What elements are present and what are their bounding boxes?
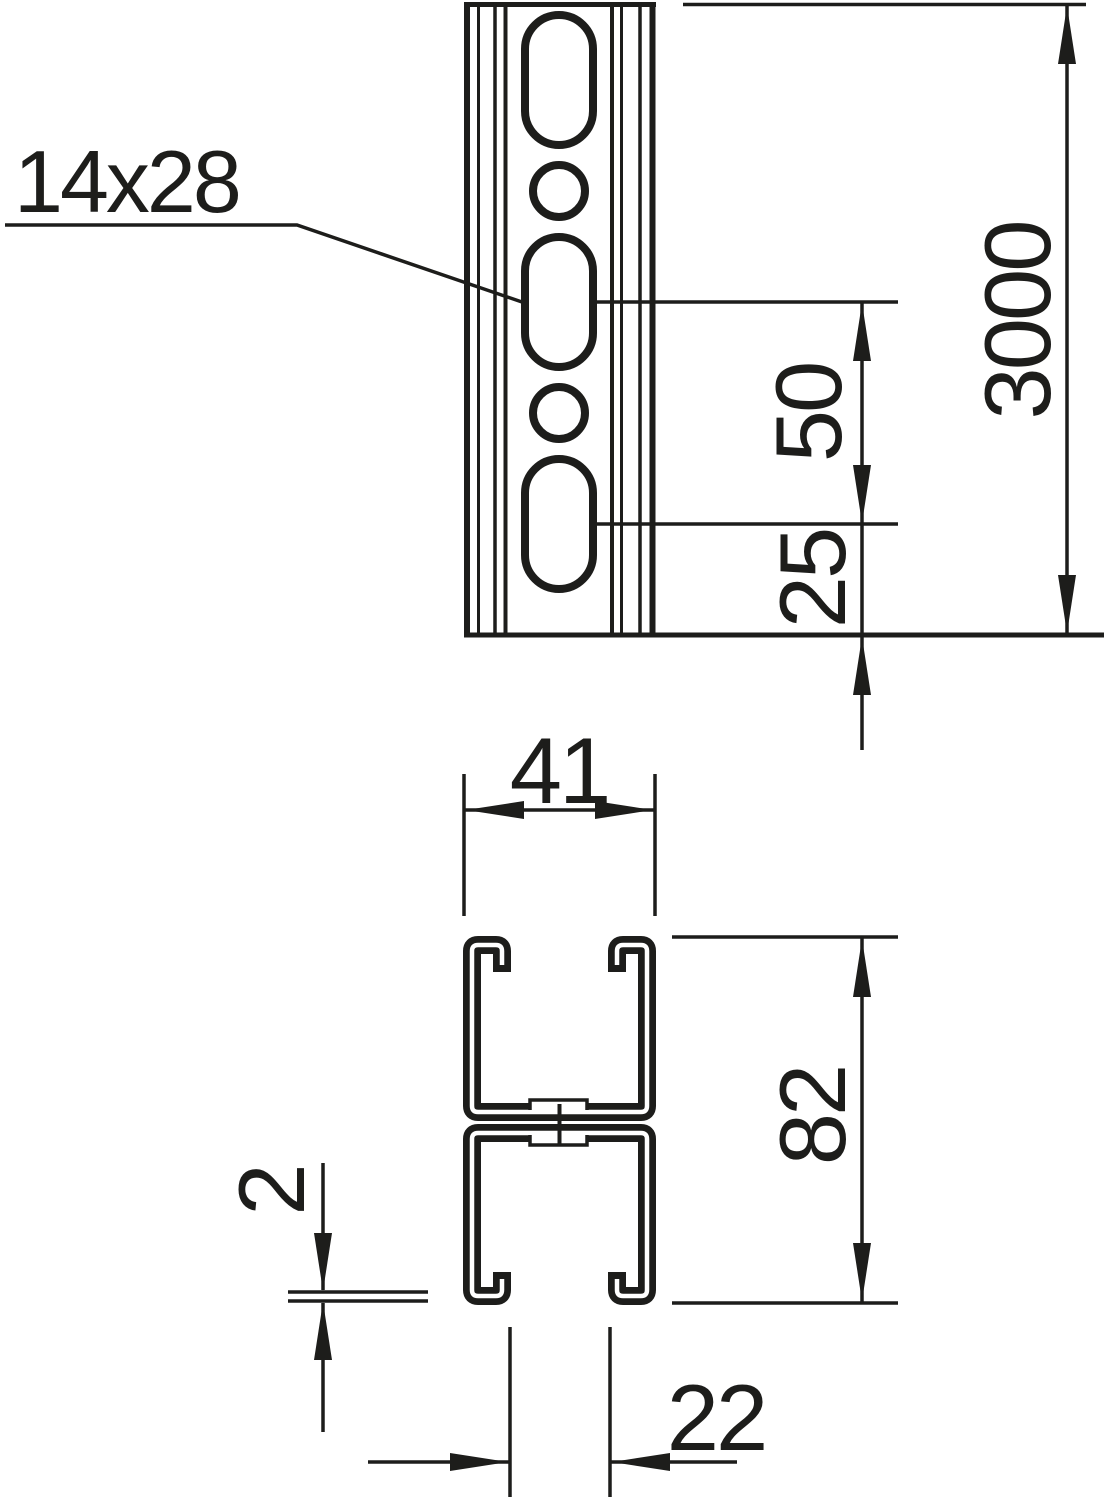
arrowhead-down <box>853 1243 871 1301</box>
arrowhead-up <box>853 637 871 695</box>
arrowhead-up <box>853 939 871 997</box>
top-channel-outline <box>472 945 647 1112</box>
arrowhead-right <box>450 1453 508 1471</box>
arrowhead-down <box>853 465 871 523</box>
arrowhead-down <box>1058 575 1076 633</box>
opening-dimension-text: 22 <box>667 1365 766 1470</box>
arrowhead-up <box>314 1302 332 1360</box>
round-hole-lower <box>533 387 585 439</box>
slot-pitch-dimension-text: 50 <box>756 364 861 463</box>
slot-size-leader-line <box>5 225 522 302</box>
thickness-dimension-text: 2 <box>219 1166 324 1215</box>
arrowhead-up <box>1058 6 1076 64</box>
technical-drawing-svg: 14x28 50 25 3000 <box>0 0 1104 1500</box>
bottom-channel-core-line <box>472 1133 647 1296</box>
width-dimension-text: 41 <box>510 718 609 823</box>
technical-drawing-page: 14x28 50 25 3000 <box>0 0 1104 1500</box>
length-dimension-text: 3000 <box>965 222 1070 419</box>
bottom-channel-outline <box>472 1133 647 1296</box>
slot-size-label: 14x28 <box>14 132 239 231</box>
oblong-slot-top <box>525 15 593 145</box>
rail-front-view: 14x28 <box>5 2 1104 635</box>
oblong-slot-middle <box>525 237 593 367</box>
arrowhead-left <box>612 1453 670 1471</box>
arrowhead-down <box>314 1233 332 1291</box>
front-view-dimensions: 50 25 3000 <box>595 5 1086 751</box>
end-offset-dimension-text: 25 <box>760 530 865 629</box>
profile-cross-section-view <box>472 945 647 1296</box>
height-dimension-text: 82 <box>760 1067 865 1166</box>
round-hole-upper <box>533 165 585 217</box>
arrowhead-up <box>853 303 871 361</box>
oblong-slot-bottom <box>525 459 593 589</box>
